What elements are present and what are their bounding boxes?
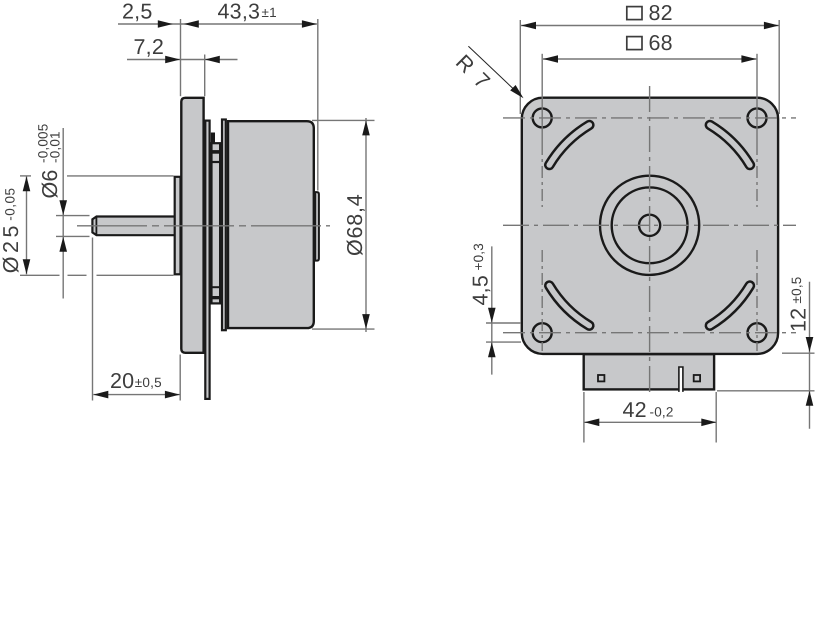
svg-text:82: 82 (649, 1, 673, 25)
svg-text:7,2: 7,2 (134, 35, 165, 59)
svg-text:68: 68 (649, 31, 673, 55)
svg-text:4,5: 4,5 (469, 275, 493, 306)
svg-text:-0,01: -0,01 (48, 131, 63, 163)
svg-text:Ø68,4: Ø68,4 (343, 193, 367, 256)
svg-text:±1: ±1 (262, 5, 277, 20)
svg-text:43,3: 43,3 (218, 0, 261, 23)
svg-text:42: 42 (623, 398, 647, 422)
svg-text:±0,5: ±0,5 (789, 277, 804, 304)
svg-text:-0,2: -0,2 (650, 404, 674, 419)
svg-text:±0,5: ±0,5 (135, 375, 162, 390)
svg-text:-0,05: -0,05 (3, 188, 18, 221)
svg-text:12: 12 (787, 308, 811, 332)
svg-text:2,5: 2,5 (122, 0, 153, 24)
svg-text:+0,3: +0,3 (471, 243, 486, 270)
svg-text:Ø6: Ø6 (38, 169, 62, 198)
svg-text:20: 20 (110, 369, 134, 393)
svg-text:Ø25: Ø25 (0, 222, 23, 273)
